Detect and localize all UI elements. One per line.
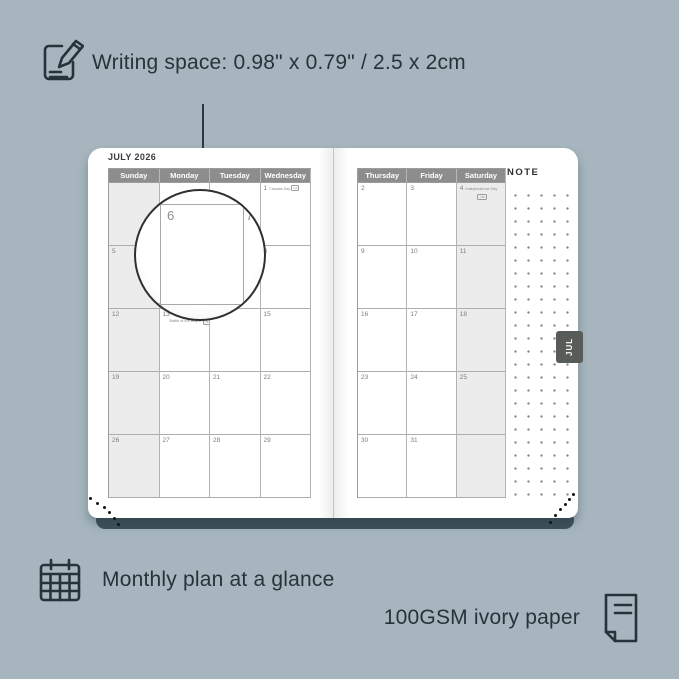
corner-stitch-dot xyxy=(572,493,575,496)
calendar-cell: 9 xyxy=(358,246,407,309)
corner-stitch-dot xyxy=(89,497,92,500)
calendar-cell: 25 xyxy=(457,372,506,435)
day-number: 27 xyxy=(163,437,170,444)
corner-stitch-dot xyxy=(113,517,116,520)
day-number: 19 xyxy=(112,374,119,381)
day-number: 5 xyxy=(112,248,116,255)
corner-stitch-dot xyxy=(549,521,552,524)
calendar-cell: 1Canada Day CA xyxy=(261,183,312,246)
weekday-header: Wednesday xyxy=(261,169,312,183)
writing-space-label: Writing space: 0.98" x 0.79" / 2.5 x 2cm xyxy=(92,51,466,75)
month-title: JULY 2026 xyxy=(108,152,156,162)
holiday-label: Canada Day CA xyxy=(269,187,299,191)
day-number: 23 xyxy=(361,374,368,381)
paper-label: 100GSM ivory paper xyxy=(280,606,580,630)
pencil-note-icon xyxy=(38,36,84,84)
day-number: 9 xyxy=(361,248,365,255)
day-number: 1 xyxy=(264,185,268,192)
holiday-country-badge: US xyxy=(477,194,487,200)
calendar-cell: 30 xyxy=(358,435,407,498)
day-number: 2 xyxy=(361,185,365,192)
calendar-cell: 29 xyxy=(261,435,312,498)
day-number: 26 xyxy=(112,437,119,444)
weekday-header: Saturday xyxy=(457,169,506,183)
spine-shade-right xyxy=(334,148,349,518)
day-number: 21 xyxy=(213,374,220,381)
calendar-cell xyxy=(457,435,506,498)
calendar-cell: 24 xyxy=(407,372,456,435)
corner-stitch-dot xyxy=(96,502,99,505)
calendar-cell: 4Independence Day US xyxy=(457,183,506,246)
calendar-cell: 19 xyxy=(109,372,160,435)
corner-stitch-dot xyxy=(108,511,111,514)
calendar-cell: 18 xyxy=(457,309,506,372)
magnifier-circle: 6 7 xyxy=(134,189,266,321)
month-tab: JUL xyxy=(556,331,583,363)
corner-stitch-dot xyxy=(103,506,106,509)
paper-sheet-icon xyxy=(598,593,640,645)
day-number: 4 xyxy=(460,185,464,192)
day-number: 31 xyxy=(410,437,417,444)
calendar-cell: 11 xyxy=(457,246,506,309)
calendar-cell: 26 xyxy=(109,435,160,498)
monthly-plan-label: Monthly plan at a glance xyxy=(102,568,334,592)
calendar-cell: 21 xyxy=(210,372,261,435)
day-number: 17 xyxy=(410,311,417,318)
day-number: 22 xyxy=(264,374,271,381)
calendar-cell: 15 xyxy=(261,309,312,372)
day-number: 15 xyxy=(264,311,271,318)
day-number: 28 xyxy=(213,437,220,444)
right-page-calendar: ThursdayFridaySaturday234Independence Da… xyxy=(357,168,506,498)
weekday-header: Sunday xyxy=(109,169,160,183)
holiday-country-badge: CA xyxy=(291,185,299,191)
corner-stitch-dot xyxy=(117,523,120,526)
day-number: 20 xyxy=(163,374,170,381)
spine-seam xyxy=(333,148,334,518)
calendar-cell: 2 xyxy=(358,183,407,246)
weekday-header: Tuesday xyxy=(210,169,261,183)
weekday-header: Thursday xyxy=(358,169,407,183)
calendar-icon xyxy=(38,558,82,604)
magnified-day-7: 7 xyxy=(246,208,253,223)
corner-stitch-dot xyxy=(554,514,557,517)
calendar-cell: 27 xyxy=(160,435,211,498)
day-number: 25 xyxy=(460,374,467,381)
day-number: 29 xyxy=(264,437,271,444)
weekday-header: Friday xyxy=(407,169,456,183)
calendar-cell: 17 xyxy=(407,309,456,372)
calendar-cell: 3 xyxy=(407,183,456,246)
day-number: 12 xyxy=(112,311,119,318)
day-number: 3 xyxy=(410,185,414,192)
calendar-cell: 28 xyxy=(210,435,261,498)
calendar-cell: 20 xyxy=(160,372,211,435)
day-number: 11 xyxy=(460,248,467,255)
corner-stitch-dot xyxy=(568,498,571,501)
magnified-day-6: 6 xyxy=(167,208,174,223)
spine-shade-left xyxy=(318,148,333,518)
calendar-cell: 10 xyxy=(407,246,456,309)
calendar-cell: 31 xyxy=(407,435,456,498)
calendar-cell: 8 xyxy=(261,246,312,309)
calendar-cell: 23 xyxy=(358,372,407,435)
day-number: 18 xyxy=(460,311,467,318)
day-number: 16 xyxy=(361,311,368,318)
day-number: 30 xyxy=(361,437,368,444)
holiday-label: Independence Day US xyxy=(460,187,505,200)
corner-stitch-dot xyxy=(564,503,567,506)
calendar-cell: 12 xyxy=(109,309,160,372)
weekday-header: Monday xyxy=(160,169,211,183)
corner-stitch-dot xyxy=(559,508,562,511)
day-number: 24 xyxy=(410,374,417,381)
calendar-cell: 22 xyxy=(261,372,312,435)
note-column-label: NOTE xyxy=(507,167,539,178)
day-number: 10 xyxy=(410,248,417,255)
calendar-cell: 16 xyxy=(358,309,407,372)
